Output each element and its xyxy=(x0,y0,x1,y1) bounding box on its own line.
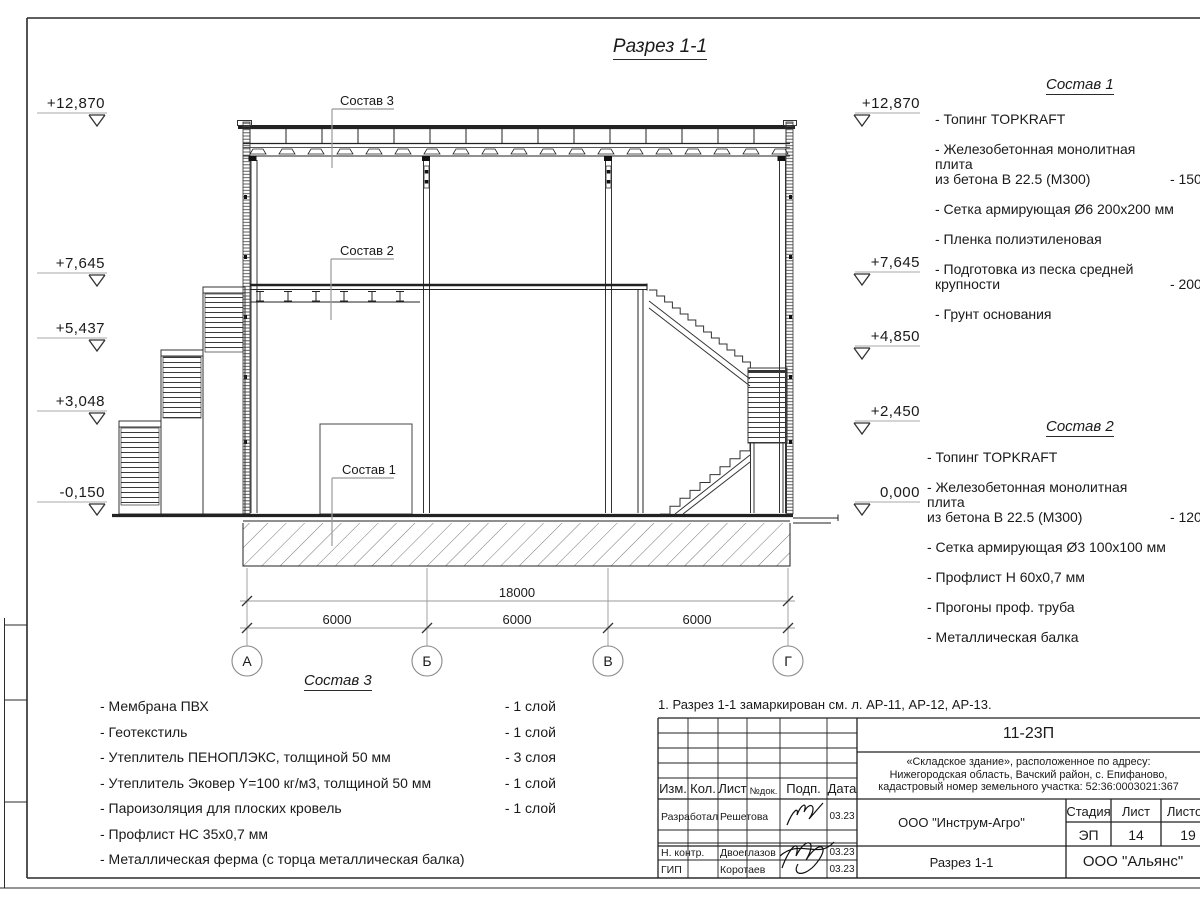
elevation-value: +12,870 xyxy=(855,95,920,112)
sostav3-title-wrap: Состав 3 xyxy=(304,672,372,691)
sostav1-list: - Топинг TOPKRAFT - Железобетонная монол… xyxy=(935,106,1200,322)
tb-name: Двоеглазов xyxy=(720,846,776,860)
sostav2-title: Состав 2 xyxy=(1046,418,1114,437)
tb-role: Н. контр. xyxy=(661,846,704,860)
sostav1-title: Состав 1 xyxy=(1046,76,1114,95)
left-stepped-blocks xyxy=(119,287,245,514)
list-item: - Мембрана ПВХ- 1 слой xyxy=(100,699,556,714)
tb-sheets: 19 xyxy=(1161,828,1200,842)
walls xyxy=(238,121,797,515)
drawing-title: Разрез 1-1 xyxy=(613,36,707,60)
tb-col-podp: Подп. xyxy=(780,782,827,796)
elevation-value: +4,850 xyxy=(855,328,920,345)
tb-col-izm: Изм. xyxy=(658,782,688,796)
stairs xyxy=(649,290,787,514)
dim-bay: 6000 xyxy=(307,612,367,627)
leader-label-sostav3: Состав 3 xyxy=(340,93,394,108)
elevation-value: +7,645 xyxy=(37,255,105,272)
elevation-value: -0,150 xyxy=(37,484,105,501)
tb-name: Решетова xyxy=(720,810,768,824)
tb-section-name: Разрез 1-1 xyxy=(857,856,1066,870)
sostav2-list: - Топинг TOPKRAFT - Железобетонная монол… xyxy=(927,444,1200,645)
tb-doc-number: 11-23П xyxy=(857,727,1200,741)
dim-bay: 6000 xyxy=(487,612,547,627)
list-item: - Геотекстиль- 1 слой xyxy=(100,725,556,740)
drawing-sheet: { "title": "Разрез 1-1", "marks_left": [… xyxy=(0,0,1200,900)
list-item: - Железобетонная монолитная плита из бет… xyxy=(927,480,1200,525)
list-item: - Пароизоляция для плоских кровель- 1 сл… xyxy=(100,801,556,816)
list-item: - Утеплитель Эковер Y=100 кг/м3, толщино… xyxy=(100,776,556,791)
leader-label-sostav2: Состав 2 xyxy=(340,243,394,258)
axis-bubble-b: Б xyxy=(422,653,431,669)
list-item: - Утеплитель ПЕНОПЛЭКС, толщиной 50 мм- … xyxy=(100,750,556,765)
axis-bubble-a: А xyxy=(242,653,252,669)
tb-role: ГИП xyxy=(661,863,682,877)
sostav2-title-wrap: Состав 2 xyxy=(1046,418,1114,437)
list-item: - Сетка армирующая Ø6 200х200 мм xyxy=(935,202,1200,217)
elevation-value: +5,437 xyxy=(37,320,105,337)
tb-col-ndok: №док. xyxy=(747,785,780,799)
mezzanine-floor xyxy=(250,284,647,514)
tb-sheet: 14 xyxy=(1111,828,1161,842)
axis-bubble-g: Г xyxy=(784,653,792,669)
elevation-value: +2,450 xyxy=(855,403,920,420)
ground-slab xyxy=(112,515,838,567)
list-item: - Профлист Н 60х0,7 мм xyxy=(927,570,1200,585)
columns xyxy=(249,156,786,513)
list-item: - Топинг TOPKRAFT xyxy=(935,112,1200,127)
tb-col-data: Дата xyxy=(827,782,857,796)
list-item: - Металлическая балка xyxy=(927,630,1200,645)
tb-date: 03.23 xyxy=(827,863,857,877)
elevation-value: +7,645 xyxy=(855,254,920,271)
sostav3-list: - Мембрана ПВХ- 1 слой - Геотекстиль- 1 … xyxy=(100,699,556,867)
signatures xyxy=(780,803,834,873)
elevation-value: +3,048 xyxy=(37,393,105,410)
tb-sheet-label: Лист xyxy=(1111,805,1161,819)
tb-col-kol: Кол. xyxy=(688,782,718,796)
list-item: - Пленка полиэтиленовая xyxy=(935,232,1200,247)
elevation-value: +12,870 xyxy=(37,95,105,112)
list-item: - Железобетонная монолитная плита из бет… xyxy=(935,142,1200,187)
tb-date: 03.23 xyxy=(827,846,857,860)
elevation-marks-right xyxy=(854,113,920,515)
tb-sheets-label: Листов xyxy=(1161,805,1200,819)
list-item: - Грунт основания xyxy=(935,307,1200,322)
list-item: - Подготовка из песка средней крупности-… xyxy=(935,262,1200,292)
dim-total: 18000 xyxy=(487,585,547,600)
sheet-note: 1. Разрез 1-1 замаркирован см. л. АР-11,… xyxy=(658,698,992,712)
tb-date: 03.23 xyxy=(827,810,857,824)
leader-label-sostav1: Состав 1 xyxy=(340,462,398,477)
elevation-value: 0,000 xyxy=(855,484,920,501)
tb-name: Коротаев xyxy=(720,863,765,877)
dim-bay: 6000 xyxy=(667,612,727,627)
axis-bubble-v: В xyxy=(603,653,612,669)
tb-col-list: Лист xyxy=(718,782,747,796)
list-item: - Металлическая ферма (с торца металличе… xyxy=(100,852,556,867)
list-item: - Профлист НС 35х0,7 мм xyxy=(100,827,556,842)
list-item: - Прогоны проф. труба xyxy=(927,600,1200,615)
sostav1-title-wrap: Состав 1 xyxy=(1046,76,1114,95)
tb-stage-label: Стадия xyxy=(1066,805,1111,819)
tb-role: Разработал xyxy=(661,810,718,824)
sostav3-title: Состав 3 xyxy=(304,672,372,691)
list-item: - Топинг TOPKRAFT xyxy=(927,450,1200,465)
tb-stage: ЭП xyxy=(1066,828,1111,842)
drawing-title-wrap: Разрез 1-1 xyxy=(560,36,760,60)
roof-truss xyxy=(238,127,795,156)
tb-org: ООО "Инструм-Агро" xyxy=(857,816,1066,830)
list-item: - Сетка армирующая Ø3 100х100 мм xyxy=(927,540,1200,555)
tb-company: ООО "Альянс" xyxy=(1066,855,1200,869)
leader-lines xyxy=(331,109,394,546)
elevation-marks-left xyxy=(37,113,107,515)
tb-project: «Складское здание», расположенное по адр… xyxy=(860,756,1197,794)
